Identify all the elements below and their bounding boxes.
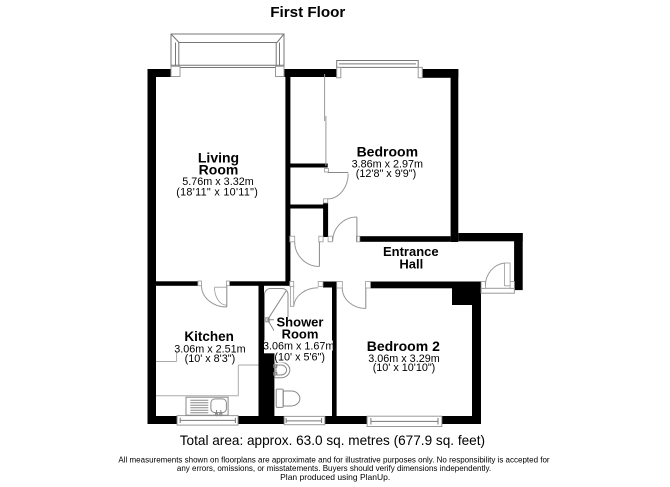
- svg-text:(10' x 8'3"): (10' x 8'3"): [185, 353, 236, 365]
- svg-text:3.06m x 1.67m: 3.06m x 1.67m: [263, 340, 334, 352]
- svg-text:Bedroom: Bedroom: [357, 144, 418, 160]
- svg-text:Total area: approx. 63.0 sq. m: Total area: approx. 63.0 sq. metres (677…: [180, 433, 485, 448]
- svg-text:(10' x 10'10"): (10' x 10'10"): [373, 362, 436, 374]
- svg-text:First Floor: First Floor: [270, 4, 345, 21]
- svg-text:(18'11" x 10'11"): (18'11" x 10'11"): [176, 186, 258, 198]
- svg-text:Plan produced using PlanUp.: Plan produced using PlanUp.: [280, 472, 390, 482]
- svg-text:(12'8" x 9'9"): (12'8" x 9'9"): [356, 168, 416, 180]
- svg-text:(10' x 5'6"): (10' x 5'6"): [274, 352, 325, 364]
- svg-text:Kitchen: Kitchen: [184, 329, 234, 344]
- svg-text:Hall: Hall: [399, 257, 423, 272]
- svg-text:Bedroom 2: Bedroom 2: [367, 338, 440, 354]
